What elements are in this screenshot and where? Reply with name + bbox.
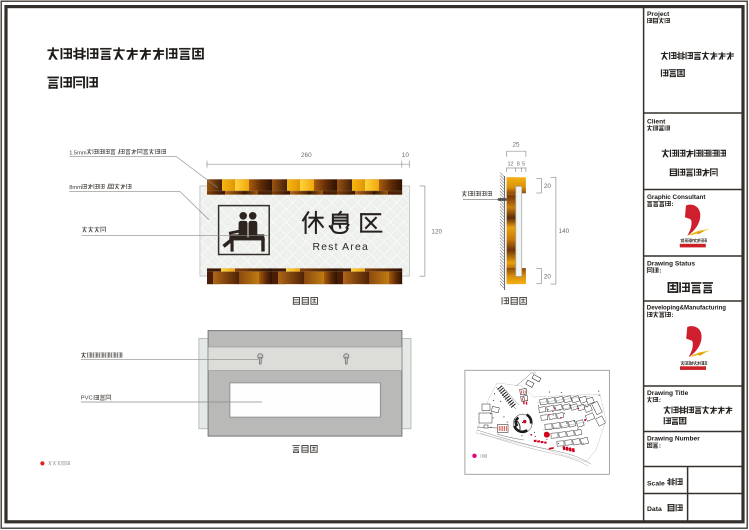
svg-text:Scale: Scale (647, 480, 665, 487)
svg-text:Data: Data (647, 506, 662, 513)
svg-text:PVC: PVC (81, 396, 93, 402)
svg-text:12: 12 (508, 162, 514, 168)
svg-text:Rest Area: Rest Area (313, 242, 369, 253)
svg-text:25: 25 (513, 142, 521, 149)
svg-text:Drawing Title: Drawing Title (647, 390, 689, 397)
svg-text:5: 5 (522, 162, 525, 168)
svg-text:Graphic Consultant: Graphic Consultant (647, 194, 706, 201)
svg-text:Drawing Status: Drawing Status (647, 260, 695, 267)
svg-text:Developing&Manufacturing: Developing&Manufacturing (647, 305, 726, 312)
svg-text:Drawing Number: Drawing Number (647, 436, 700, 443)
svg-text:8mm: 8mm (69, 185, 82, 191)
svg-text:140: 140 (559, 228, 570, 235)
svg-text:1.5mm: 1.5mm (69, 150, 87, 156)
svg-text:8: 8 (517, 162, 520, 168)
svg-text:20: 20 (544, 273, 552, 280)
svg-text:120: 120 (431, 228, 442, 235)
svg-text:Client: Client (647, 118, 666, 125)
svg-text:20: 20 (544, 183, 552, 190)
svg-text:10: 10 (402, 152, 410, 159)
svg-text:260: 260 (301, 152, 312, 159)
svg-text:Project: Project (647, 11, 670, 18)
